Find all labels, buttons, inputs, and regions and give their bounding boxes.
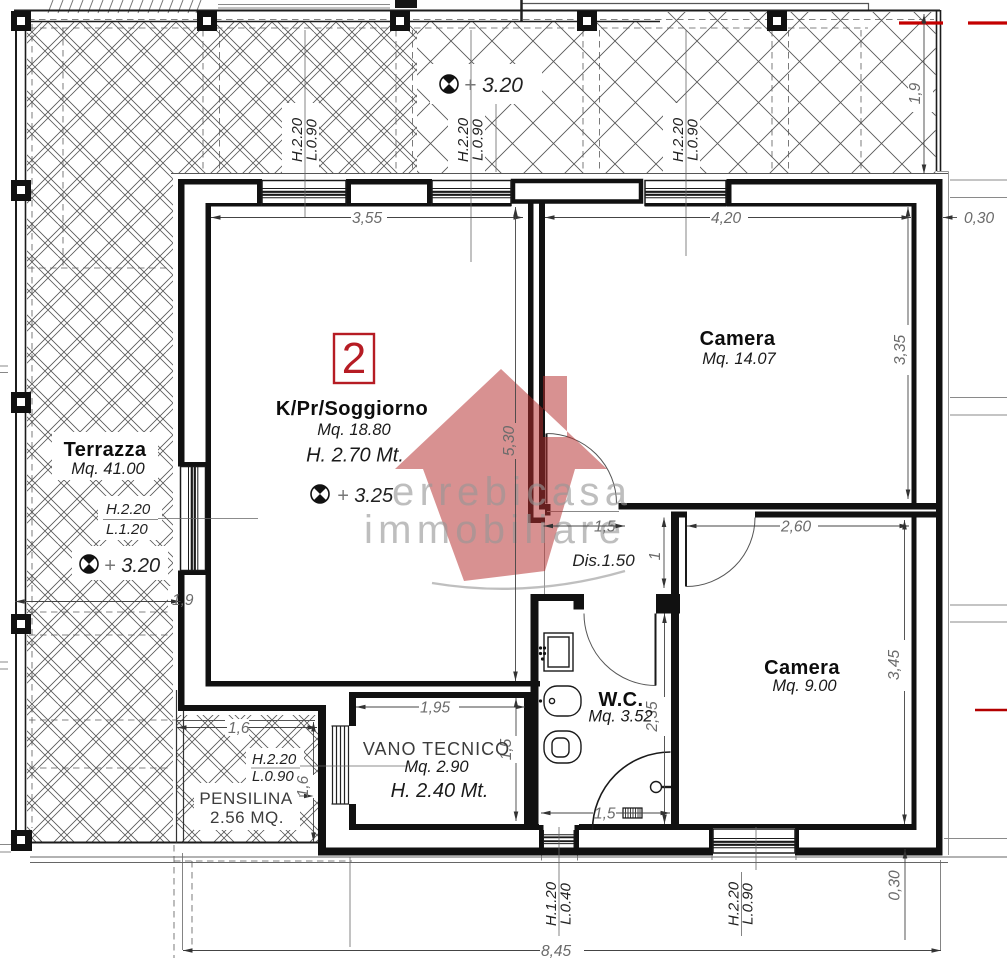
svg-text:3,55: 3,55	[352, 210, 383, 227]
svg-text:Dis.1.50: Dis.1.50	[572, 551, 635, 570]
svg-text:VANO TECNICO: VANO TECNICO	[363, 739, 510, 759]
svg-text:2.56 MQ.: 2.56 MQ.	[210, 808, 284, 827]
svg-text:4,20: 4,20	[711, 210, 742, 227]
svg-text:Mq. 3.52: Mq. 3.52	[588, 708, 652, 726]
svg-text:Mq. 41.00: Mq. 41.00	[71, 460, 145, 478]
svg-text:Mq. 2.90: Mq. 2.90	[404, 758, 469, 776]
svg-text:1: 1	[647, 552, 664, 561]
svg-text:+ 3.20: + 3.20	[464, 74, 523, 97]
svg-text:5,30: 5,30	[501, 426, 518, 457]
svg-text:H.2.20: H.2.20	[252, 751, 297, 768]
svg-text:1,6: 1,6	[295, 775, 312, 797]
svg-text:1,5: 1,5	[594, 806, 616, 823]
svg-text:L.0.90: L.0.90	[303, 118, 320, 160]
svg-text:L.0.40: L.0.40	[557, 882, 574, 924]
svg-text:3,35: 3,35	[892, 335, 909, 366]
svg-text:L.0.90: L.0.90	[739, 882, 756, 924]
svg-text:+ 3.25: + 3.25	[337, 485, 394, 507]
svg-text:Camera: Camera	[700, 328, 776, 350]
svg-text:H. 2.70 Mt.: H. 2.70 Mt.	[306, 445, 404, 467]
svg-text:L.0.90: L.0.90	[684, 118, 701, 160]
svg-text:L.0.90: L.0.90	[252, 768, 294, 785]
svg-text:Terrazza: Terrazza	[64, 439, 147, 461]
svg-text:Mq. 18.80: Mq. 18.80	[317, 421, 391, 439]
svg-text:Mq. 9.00: Mq. 9.00	[772, 677, 837, 695]
svg-text:H. 2.40 Mt.: H. 2.40 Mt.	[391, 780, 489, 802]
svg-text:8,45: 8,45	[541, 943, 572, 960]
svg-text:Mq. 14.07: Mq. 14.07	[702, 350, 776, 368]
svg-text:2,60: 2,60	[780, 519, 812, 536]
svg-text:L.0.90: L.0.90	[469, 118, 486, 160]
svg-text:1,95: 1,95	[420, 700, 451, 717]
svg-text:1,9: 1,9	[172, 592, 194, 609]
svg-text:1,5: 1,5	[594, 519, 616, 536]
svg-text:0,30: 0,30	[887, 870, 904, 901]
svg-text:PENSILINA: PENSILINA	[199, 789, 292, 808]
svg-text:0,30: 0,30	[964, 210, 995, 227]
svg-text:3,45: 3,45	[886, 650, 903, 681]
svg-text:H.2.20: H.2.20	[106, 501, 151, 518]
svg-text:Camera: Camera	[764, 657, 840, 679]
svg-text:1,6: 1,6	[228, 720, 250, 737]
svg-text:1,9: 1,9	[907, 82, 924, 104]
svg-text:L.1.20: L.1.20	[106, 521, 148, 538]
svg-text:+ 3.20: + 3.20	[104, 555, 160, 577]
svg-text:K/Pr/Soggiorno: K/Pr/Soggiorno	[276, 398, 428, 420]
svg-text:immobiliare: immobiliare	[364, 508, 624, 552]
svg-text:2: 2	[342, 334, 366, 383]
